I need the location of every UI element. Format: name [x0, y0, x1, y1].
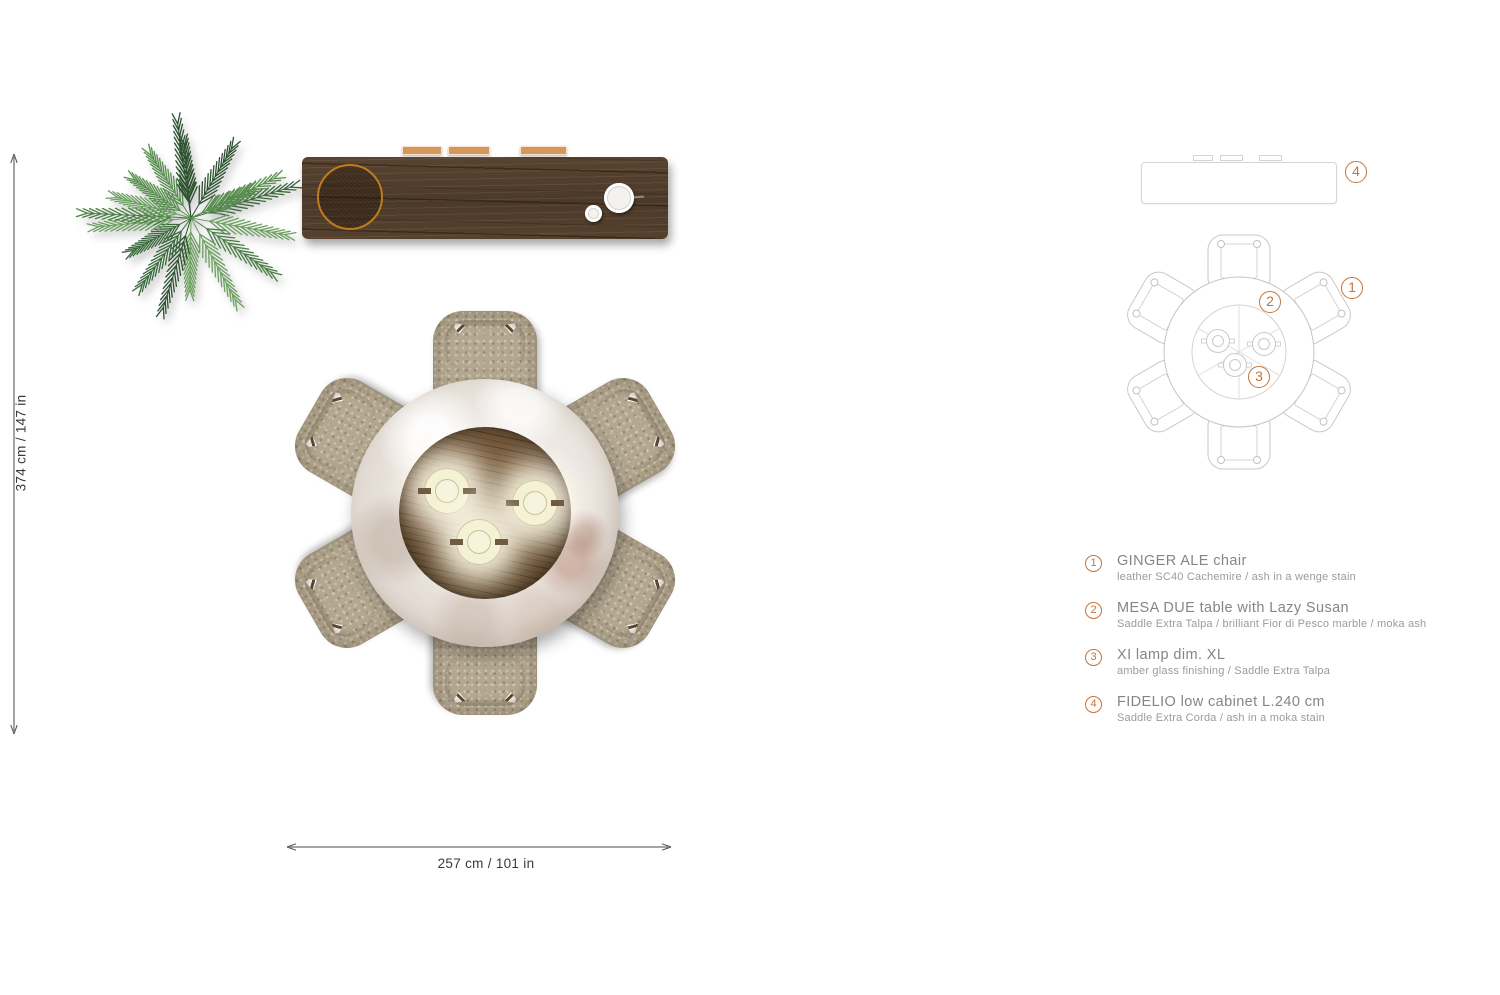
legend-item-table: 2 MESA DUE table with Lazy Susan Saddle … — [1085, 600, 1485, 630]
chair-notch — [650, 576, 666, 592]
legend-item-cabinet: 4 FIDELIO low cabinet L.240 cm Saddle Ex… — [1085, 694, 1485, 724]
cabinet-round-tray — [317, 164, 383, 230]
legend-subtitle: leather SC40 Cachemire / ash in a wenge … — [1117, 571, 1485, 583]
horizontal-dimension-label: 257 cm / 101 in — [438, 856, 535, 871]
lamp-handle — [495, 539, 508, 545]
cabinet-tray — [402, 146, 442, 155]
chair-notch — [650, 434, 666, 450]
furniture-plan-page: 374 cm / 147 in 257 cm / 101 in — [0, 0, 1500, 995]
chair-notch — [504, 692, 516, 703]
palm-plant — [73, 108, 309, 334]
chair-notch — [305, 576, 321, 592]
callout-cabinet: 4 — [1345, 161, 1367, 183]
chair-notch — [305, 434, 321, 450]
xi-lamp — [456, 519, 502, 565]
fidelio-cabinet — [302, 157, 668, 239]
legend-title: XI lamp dim. XL — [1117, 647, 1485, 664]
lamp-handle — [551, 500, 564, 506]
chair-notch — [330, 619, 346, 635]
schematic-cabinet-tray — [1259, 155, 1282, 161]
schematic-table-with-chairs — [1119, 232, 1359, 472]
chair-notch — [330, 391, 346, 407]
legend-item-chair: 1 GINGER ALE chair leather SC40 Cachemir… — [1085, 553, 1485, 583]
chair-notch — [454, 323, 466, 334]
vertical-dimension-label: 374 cm / 147 in — [14, 395, 29, 492]
cabinet-tray — [520, 146, 567, 155]
vase-large — [604, 183, 634, 213]
callout-table: 2 — [1259, 291, 1281, 313]
chair-notch — [454, 692, 466, 703]
schematic-cabinet-tray — [1193, 155, 1213, 161]
schematic-cabinet — [1141, 162, 1337, 204]
lamp-handle — [418, 488, 431, 494]
legend-title: MESA DUE table with Lazy Susan — [1117, 600, 1485, 617]
xi-lamp — [512, 480, 558, 526]
xi-lamp — [424, 468, 470, 514]
legend-number: 4 — [1085, 696, 1102, 713]
legend-subtitle: Saddle Extra Corda / ash in a moka stain — [1117, 712, 1485, 724]
legend-subtitle: amber glass finishing / Saddle Extra Tal… — [1117, 665, 1485, 677]
legend-title: GINGER ALE chair — [1117, 553, 1485, 570]
legend-number: 3 — [1085, 649, 1102, 666]
callout-chair: 1 — [1341, 277, 1363, 299]
vase-stem — [634, 196, 644, 198]
cabinet-tray — [448, 146, 490, 155]
vase-small — [585, 205, 602, 222]
lamp-handle — [450, 539, 463, 545]
lamp-handle — [506, 500, 519, 506]
legend-item-lamp: 3 XI lamp dim. XL amber glass finishing … — [1085, 647, 1485, 677]
lamp-handle — [463, 488, 476, 494]
chair-notch — [504, 323, 516, 334]
callout-lamp: 3 — [1248, 366, 1270, 388]
chair-notch — [625, 619, 641, 635]
legend-title: FIDELIO low cabinet L.240 cm — [1117, 694, 1485, 711]
horizontal-dimension-arrow — [284, 841, 674, 854]
chair-notch — [625, 391, 641, 407]
legend-subtitle: Saddle Extra Talpa / brilliant Fior di P… — [1117, 618, 1485, 630]
legend-number: 2 — [1085, 602, 1102, 619]
legend-number: 1 — [1085, 555, 1102, 572]
schematic-cabinet-tray — [1220, 155, 1243, 161]
